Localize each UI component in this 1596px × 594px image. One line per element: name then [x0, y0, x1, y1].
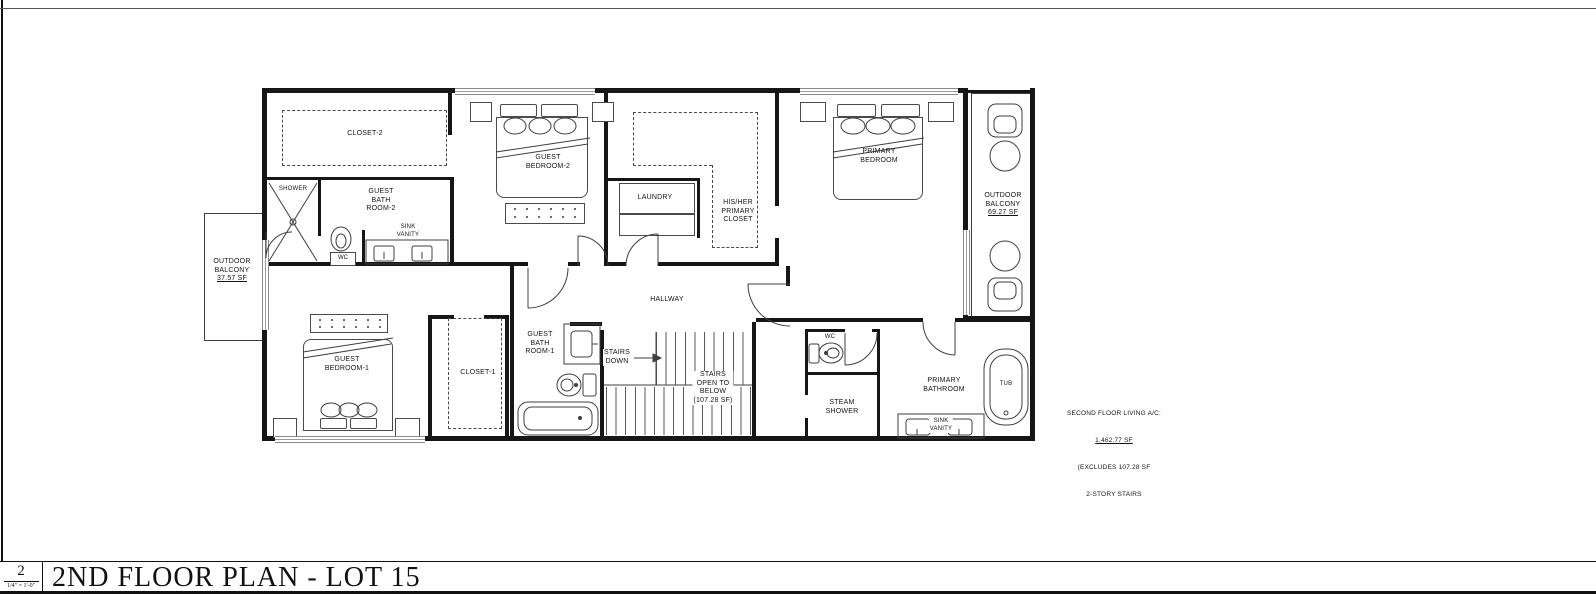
- room-label-steam-shower: STEAMSHOWER: [826, 399, 859, 416]
- label-wc-primary: WC: [824, 334, 836, 342]
- floor-plan: CLOSET-2 GUESTBEDROOM-2 SHOWER GUESTBATH…: [0, 0, 1596, 561]
- sheet-number: 2: [0, 563, 42, 580]
- room-label-guest-bath-2: GUESTBATHROOM-2: [366, 188, 395, 214]
- room-label-closet-2: CLOSET-2: [347, 130, 382, 139]
- label-stairs-open-to-below: STAIRSOPEN TOBELOW(107.28 SF): [692, 371, 733, 405]
- toilet-primary-wc: [809, 343, 843, 363]
- sheet-number-box: 2 1/4" = 1'-0": [0, 562, 43, 591]
- label-tub: TUB: [999, 381, 1014, 389]
- toilet-guest-bath-1: [557, 374, 596, 396]
- vanity-guest-bath-1: [564, 324, 600, 364]
- room-label-guest-bedroom-1: GUESTBEDROOM-1: [324, 356, 370, 373]
- sheet-top-border: [0, 8, 1596, 9]
- area-note: SECOND FLOOR LIVING A/C: 1,462.77 SF (EX…: [1067, 391, 1161, 517]
- bed-details: [303, 118, 924, 417]
- room-label-primary-bedroom: PRIMARYBEDROOM: [860, 148, 898, 165]
- wc-label-guest-bath-2: WC: [330, 252, 356, 266]
- room-label-outdoor-balcony-left: OUTDOORBALCONY37.57 SF: [213, 258, 250, 284]
- room-label-primary-bathroom: PRIMARYBATHROOM: [923, 377, 965, 394]
- room-label-shower: SHOWER: [278, 186, 308, 194]
- room-label-guest-bedroom-2: GUESTBEDROOM-2: [526, 154, 570, 171]
- door-arcs: [266, 232, 955, 365]
- room-label-laundry: LAUNDRY: [637, 194, 674, 203]
- stairs-down-arrow: [634, 354, 661, 362]
- room-label-guest-bath-1: GUESTBATHROOM-1: [525, 331, 554, 357]
- label-sink-vanity-primary: SINKVANITY: [929, 418, 953, 433]
- tub-guest-bath-1: [518, 402, 598, 435]
- vanity-guest-bath-2: [366, 240, 448, 264]
- drawing-title: 2ND FLOOR PLAN - LOT 15: [52, 562, 421, 594]
- sheet-number-rule: [4, 581, 39, 582]
- drawing-sheet: CLOSET-2 GUESTBEDROOM-2 SHOWER GUESTBATH…: [0, 0, 1596, 594]
- title-block: 2 1/4" = 1'-0" 2ND FLOOR PLAN - LOT 15: [0, 561, 1596, 594]
- room-label-closet-1: CLOSET-1: [460, 369, 495, 378]
- room-label-outdoor-balcony-right: OUTDOORBALCONY69.27 SF: [983, 192, 1022, 218]
- label-stairs-down: STAIRSDOWN: [603, 349, 631, 366]
- sheet-left-border: [1, 0, 3, 594]
- room-label-hallway: HALLWAY: [650, 296, 684, 305]
- toilet-guest-bath-2: [331, 227, 351, 251]
- label-sink-vanity-2: SINKVANITY: [396, 224, 420, 239]
- room-label-his-her-primary-closet: HIS/HERPRIMARYCLOSET: [721, 199, 754, 225]
- dresser-knobs: [319, 208, 576, 328]
- shower-pan: [269, 183, 317, 261]
- drawing-scale: 1/4" = 1'-0": [0, 583, 42, 589]
